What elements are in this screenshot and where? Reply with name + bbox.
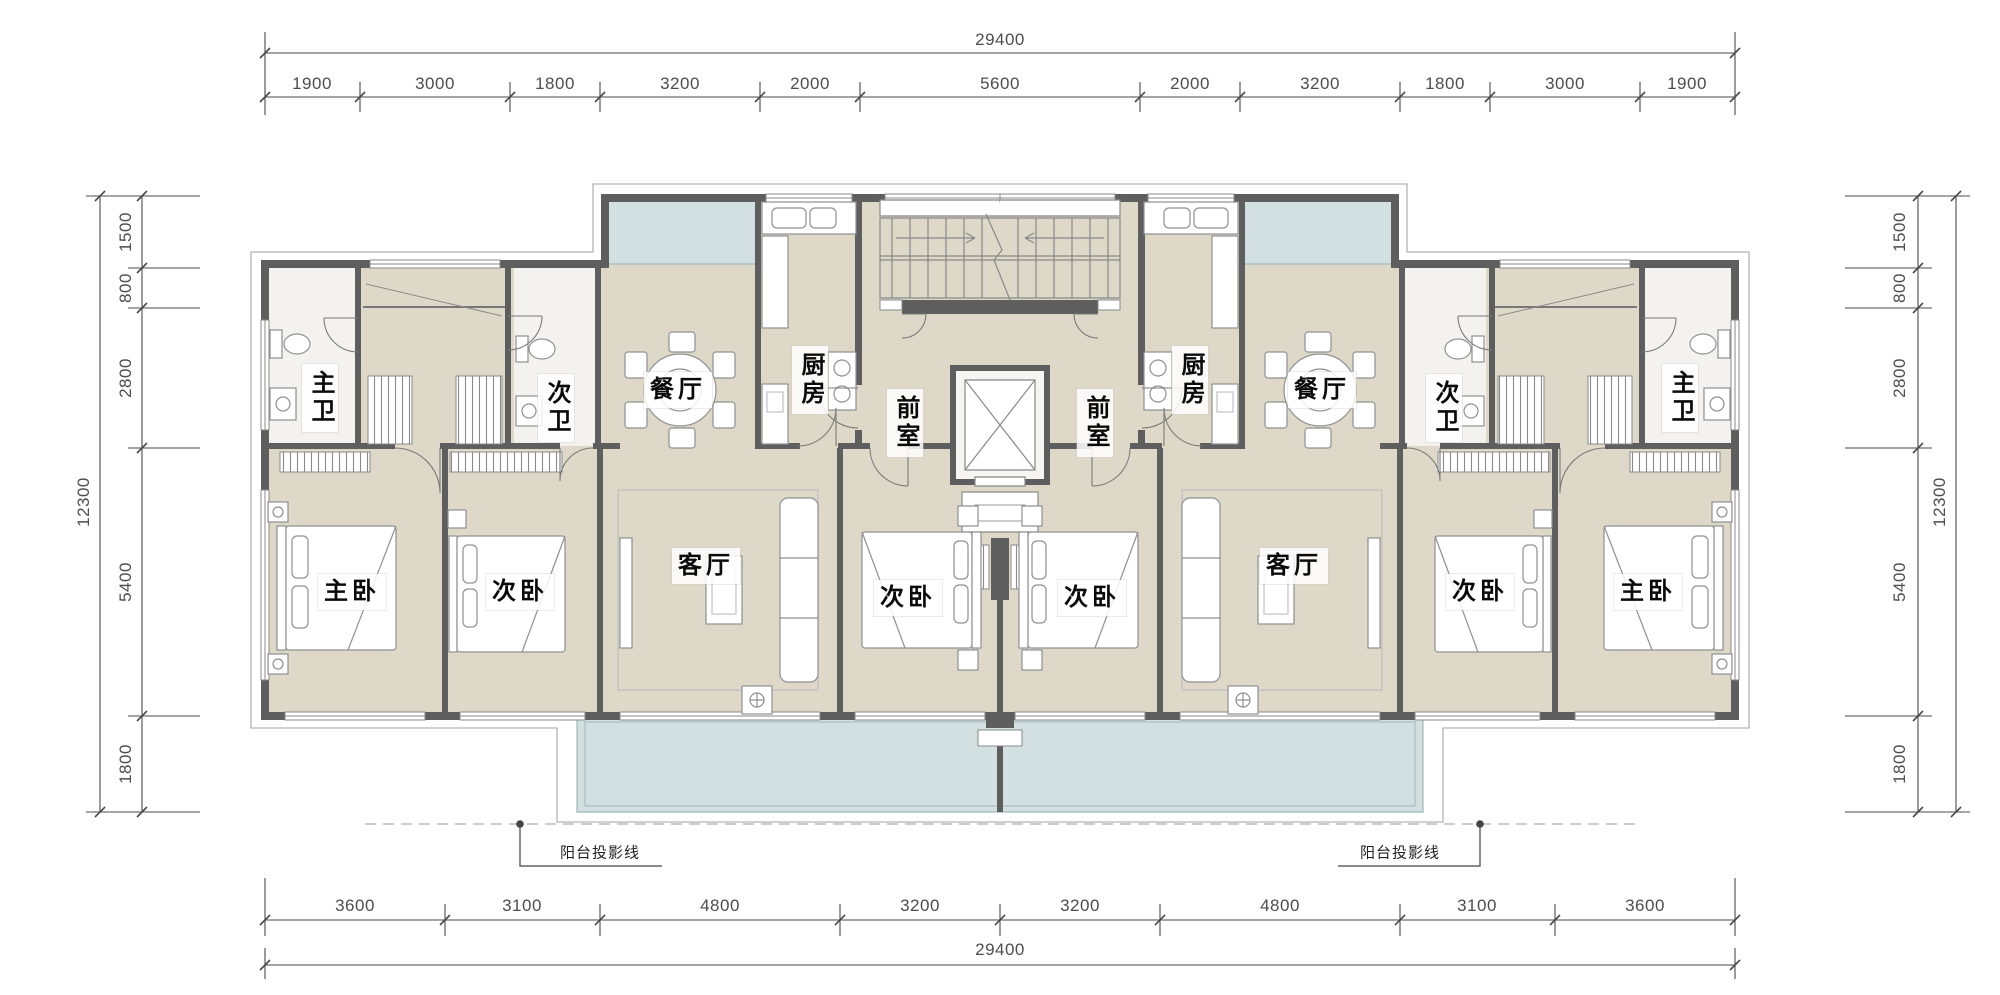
- room-label-kitchen-right: 厨房: [1172, 346, 1208, 414]
- room-label-master-bath-right: 主卫: [1662, 364, 1698, 432]
- room-label-second-bath-right: 次卫: [1426, 374, 1462, 442]
- dim-left-seg-0: 1500: [116, 212, 136, 252]
- dim-right-total: 12300: [1930, 477, 1950, 527]
- dim-top-seg-3: 3200: [660, 74, 700, 94]
- balcony-projection-note-left: 阳台投影线: [560, 842, 640, 863]
- dim-bottom-seg-1: 3100: [502, 896, 542, 916]
- dim-right-seg-4: 1800: [1890, 744, 1910, 784]
- top-balcony-strip: [607, 200, 758, 264]
- room-label-master-bed-right: 主卧: [1614, 574, 1682, 610]
- room-label-second-bed-center-left: 次卧: [874, 580, 942, 616]
- room-label-master-bed-left: 主卧: [318, 574, 386, 610]
- dim-top-seg-4: 2000: [790, 74, 830, 94]
- room-label-dining-left: 餐厅: [644, 372, 712, 408]
- dim-bottom-seg-4: 3200: [1060, 896, 1100, 916]
- dim-left-seg-2: 2800: [116, 358, 136, 398]
- room-label-living-left: 客厅: [672, 548, 740, 584]
- dim-top-total: 29400: [975, 30, 1025, 50]
- room-label-second-bed-center-right: 次卧: [1058, 580, 1126, 616]
- unit-right: [1000, 184, 1749, 824]
- room-label-dining-right: 餐厅: [1288, 372, 1356, 408]
- dim-left-total: 12300: [74, 477, 94, 527]
- dim-left-seg-3: 5400: [116, 562, 136, 602]
- room-label-living-right: 客厅: [1260, 548, 1328, 584]
- balcony-note-leaders: [517, 821, 1483, 866]
- dim-bottom-seg-0: 3600: [335, 896, 375, 916]
- dim-bottom-total: 29400: [975, 940, 1025, 960]
- dim-right-seg-3: 5400: [1890, 562, 1910, 602]
- room-label-second-bed-left: 次卧: [486, 574, 554, 610]
- floor-plan-drawing: [0, 0, 2000, 995]
- dim-top-seg-9: 3000: [1545, 74, 1585, 94]
- dim-bottom-seg-2: 4800: [700, 896, 740, 916]
- unit-left: [251, 184, 1000, 824]
- dim-bottom-seg-5: 4800: [1260, 896, 1300, 916]
- dim-left-seg-4: 1800: [116, 744, 136, 784]
- floor-plan-page: 29400 1900 3000 1800 3200 2000 5600 2000…: [0, 0, 2000, 995]
- room-label-lobby-left: 前室: [887, 389, 923, 457]
- stair-door-jamb: [880, 300, 902, 310]
- dim-top-seg-10: 1900: [1667, 74, 1707, 94]
- room-label-kitchen-left: 厨房: [792, 346, 828, 414]
- dim-top-seg-1: 3000: [415, 74, 455, 94]
- dim-bottom-seg-3: 3200: [900, 896, 940, 916]
- dim-bottom-seg-6: 3100: [1457, 896, 1497, 916]
- dim-top-seg-8: 1800: [1425, 74, 1465, 94]
- dim-right-seg-2: 2800: [1890, 358, 1910, 398]
- dim-bottom-seg-7: 3600: [1625, 896, 1665, 916]
- dim-right-seg-0: 1500: [1890, 212, 1910, 252]
- room-label-second-bed-right: 次卧: [1446, 574, 1514, 610]
- dim-top-seg-7: 3200: [1300, 74, 1340, 94]
- room-label-lobby-right: 前室: [1077, 389, 1113, 457]
- dim-top-seg-0: 1900: [292, 74, 332, 94]
- dim-top-seg-5: 5600: [980, 74, 1020, 94]
- balcony-planter: [978, 730, 1000, 746]
- dim-right-seg-1: 800: [1890, 273, 1910, 303]
- dim-top-seg-2: 1800: [535, 74, 575, 94]
- balcony-projection-note-right: 阳台投影线: [1360, 842, 1440, 863]
- dim-left-seg-1: 800: [116, 273, 136, 303]
- room-label-master-bath-left: 主卫: [302, 364, 338, 432]
- room-label-second-bath-left: 次卫: [538, 374, 574, 442]
- bottom-balcony: [577, 716, 1000, 812]
- dim-top-seg-6: 2000: [1170, 74, 1210, 94]
